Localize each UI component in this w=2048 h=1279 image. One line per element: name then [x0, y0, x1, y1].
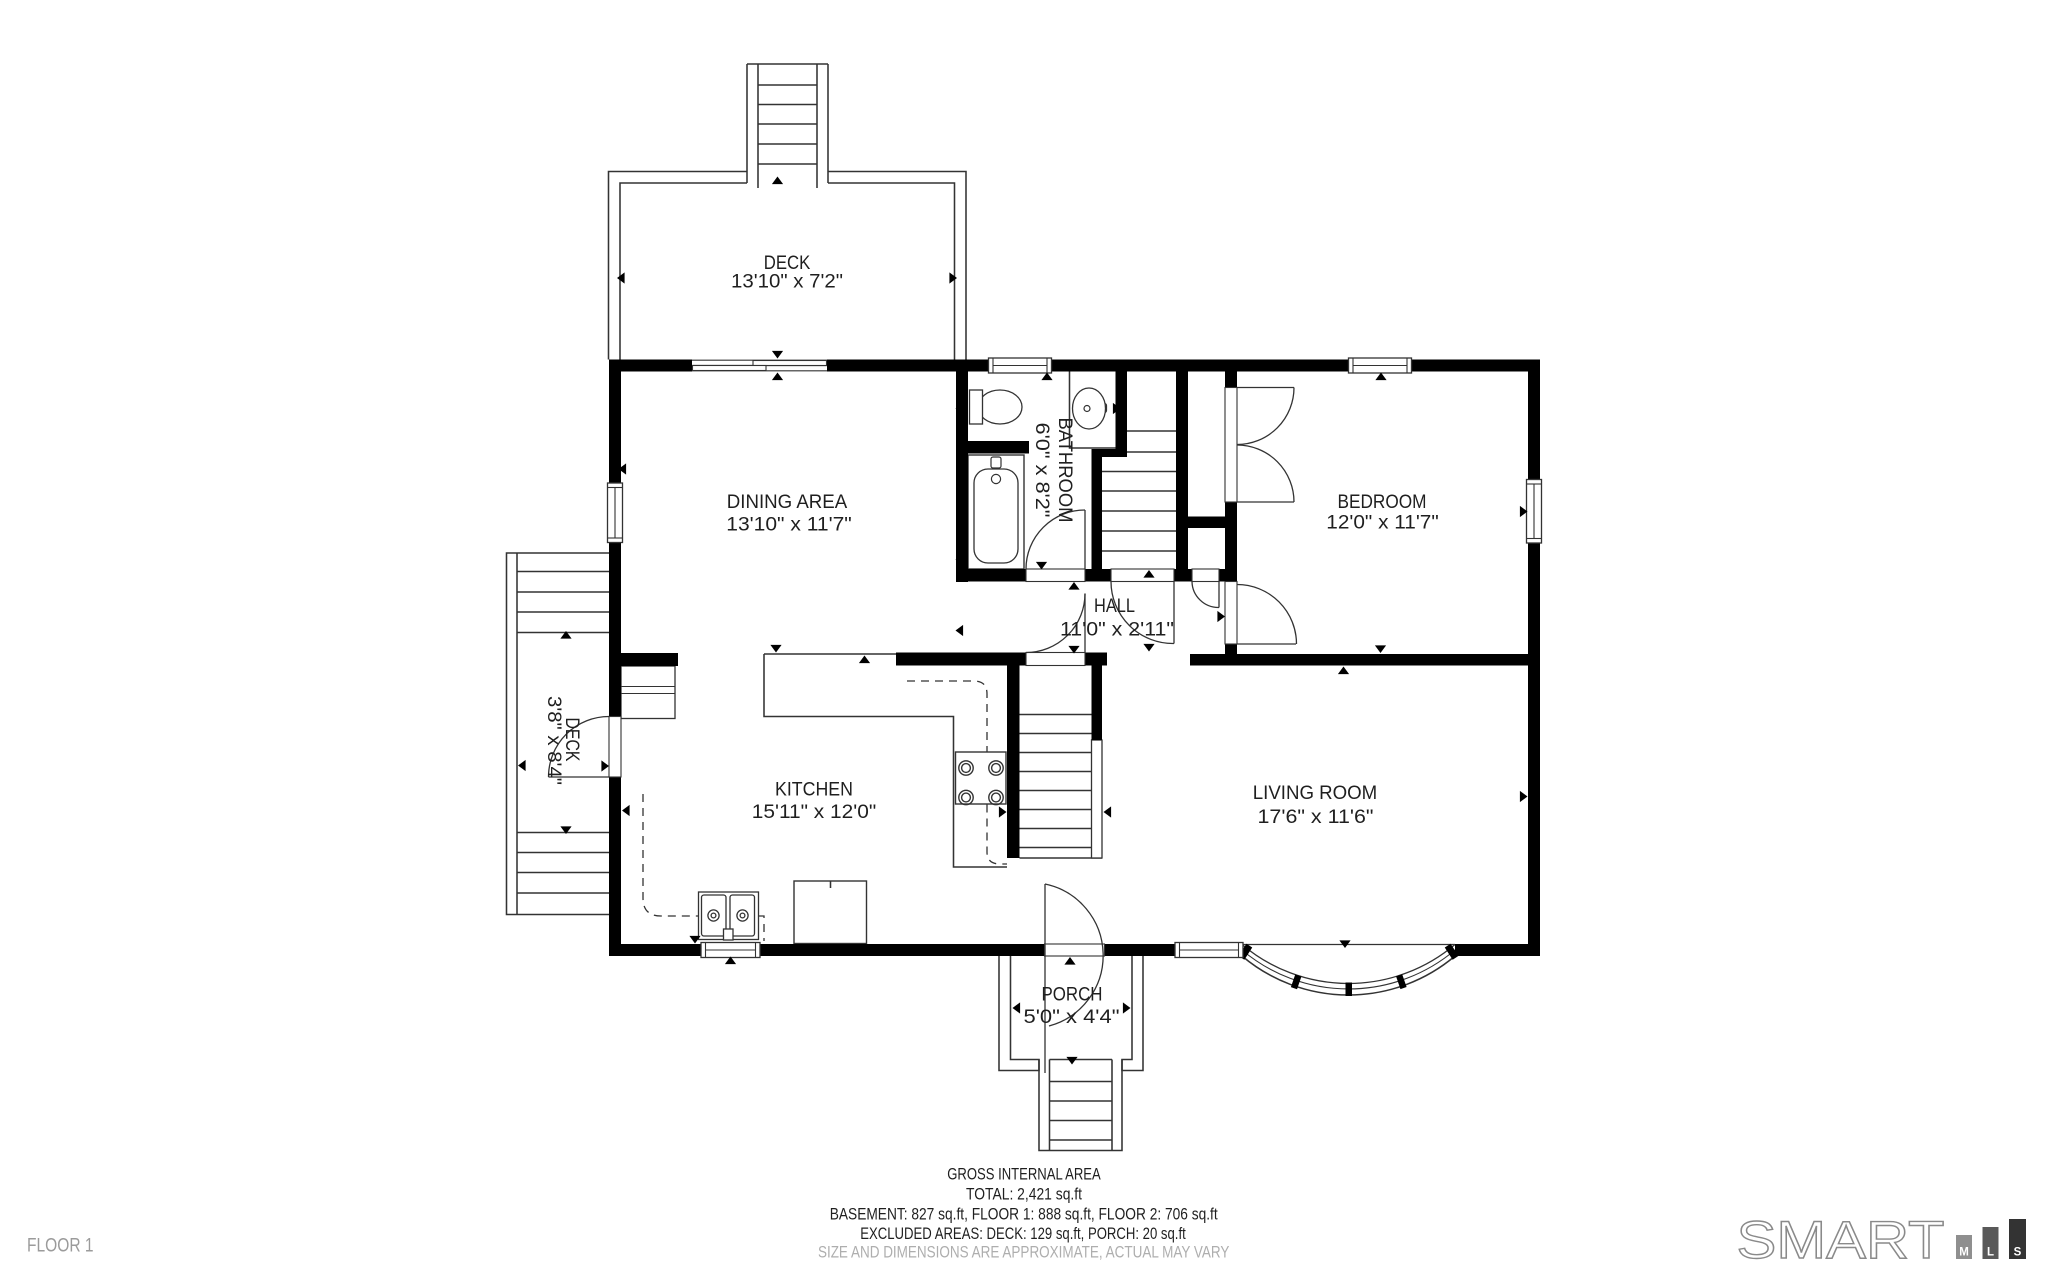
svg-text:DINING AREA: DINING AREA	[727, 491, 848, 513]
svg-text:3'8" x 8'4": 3'8" x 8'4"	[543, 696, 565, 785]
svg-text:TOTAL: 2,421 sq.ft: TOTAL: 2,421 sq.ft	[966, 1184, 1082, 1203]
svg-text:5'0" x 4'4": 5'0" x 4'4"	[1024, 1006, 1120, 1028]
svg-text:LIVING ROOM: LIVING ROOM	[1253, 782, 1378, 804]
svg-text:BEDROOM: BEDROOM	[1338, 491, 1427, 513]
svg-text:M: M	[1959, 1247, 1969, 1259]
svg-text:11'0" x 2'11": 11'0" x 2'11"	[1060, 619, 1174, 641]
svg-text:S: S	[2014, 1247, 2022, 1259]
svg-text:EXCLUDED AREAS: DECK: 129 sq.f: EXCLUDED AREAS: DECK: 129 sq.ft, PORCH: …	[860, 1224, 1186, 1243]
svg-text:SMART: SMART	[1737, 1211, 1945, 1270]
svg-text:PORCH: PORCH	[1042, 983, 1103, 1005]
svg-text:GROSS INTERNAL AREA: GROSS INTERNAL AREA	[947, 1164, 1101, 1183]
svg-text:BASEMENT: 827 sq.ft, FLOOR 1:: BASEMENT: 827 sq.ft, FLOOR 1: 888 sq.ft,…	[830, 1204, 1218, 1223]
svg-text:13'10" x 7'2": 13'10" x 7'2"	[731, 270, 843, 292]
svg-text:FLOOR 1: FLOOR 1	[27, 1234, 94, 1256]
svg-text:BATHROOM: BATHROOM	[1054, 418, 1076, 523]
svg-text:12'0" x 11'7": 12'0" x 11'7"	[1326, 512, 1439, 534]
svg-text:KITCHEN: KITCHEN	[775, 778, 853, 800]
svg-text:L: L	[1987, 1247, 1994, 1259]
svg-text:15'11" x 12'0": 15'11" x 12'0"	[752, 801, 877, 823]
svg-text:13'10" x 11'7": 13'10" x 11'7"	[726, 514, 852, 536]
svg-text:HALL: HALL	[1094, 595, 1135, 617]
svg-text:17'6" x 11'6": 17'6" x 11'6"	[1258, 806, 1374, 828]
svg-text:6'0" x 8'2": 6'0" x 8'2"	[1031, 423, 1053, 518]
svg-text:SIZE AND DIMENSIONS ARE APPROX: SIZE AND DIMENSIONS ARE APPROXIMATE, ACT…	[818, 1242, 1230, 1261]
